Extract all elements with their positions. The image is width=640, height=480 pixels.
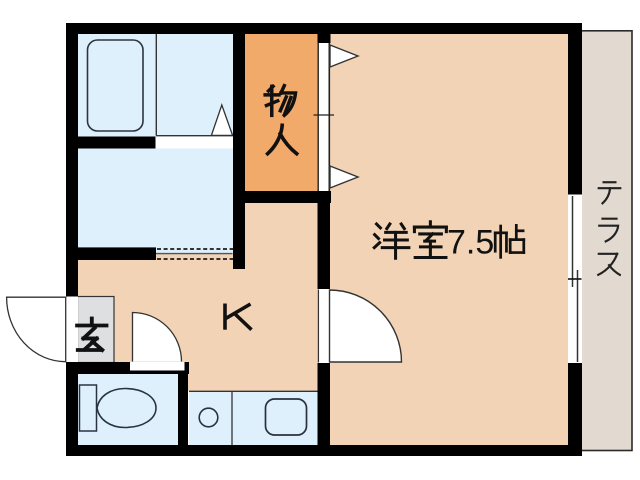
svg-text:7.5: 7.5: [447, 224, 494, 262]
